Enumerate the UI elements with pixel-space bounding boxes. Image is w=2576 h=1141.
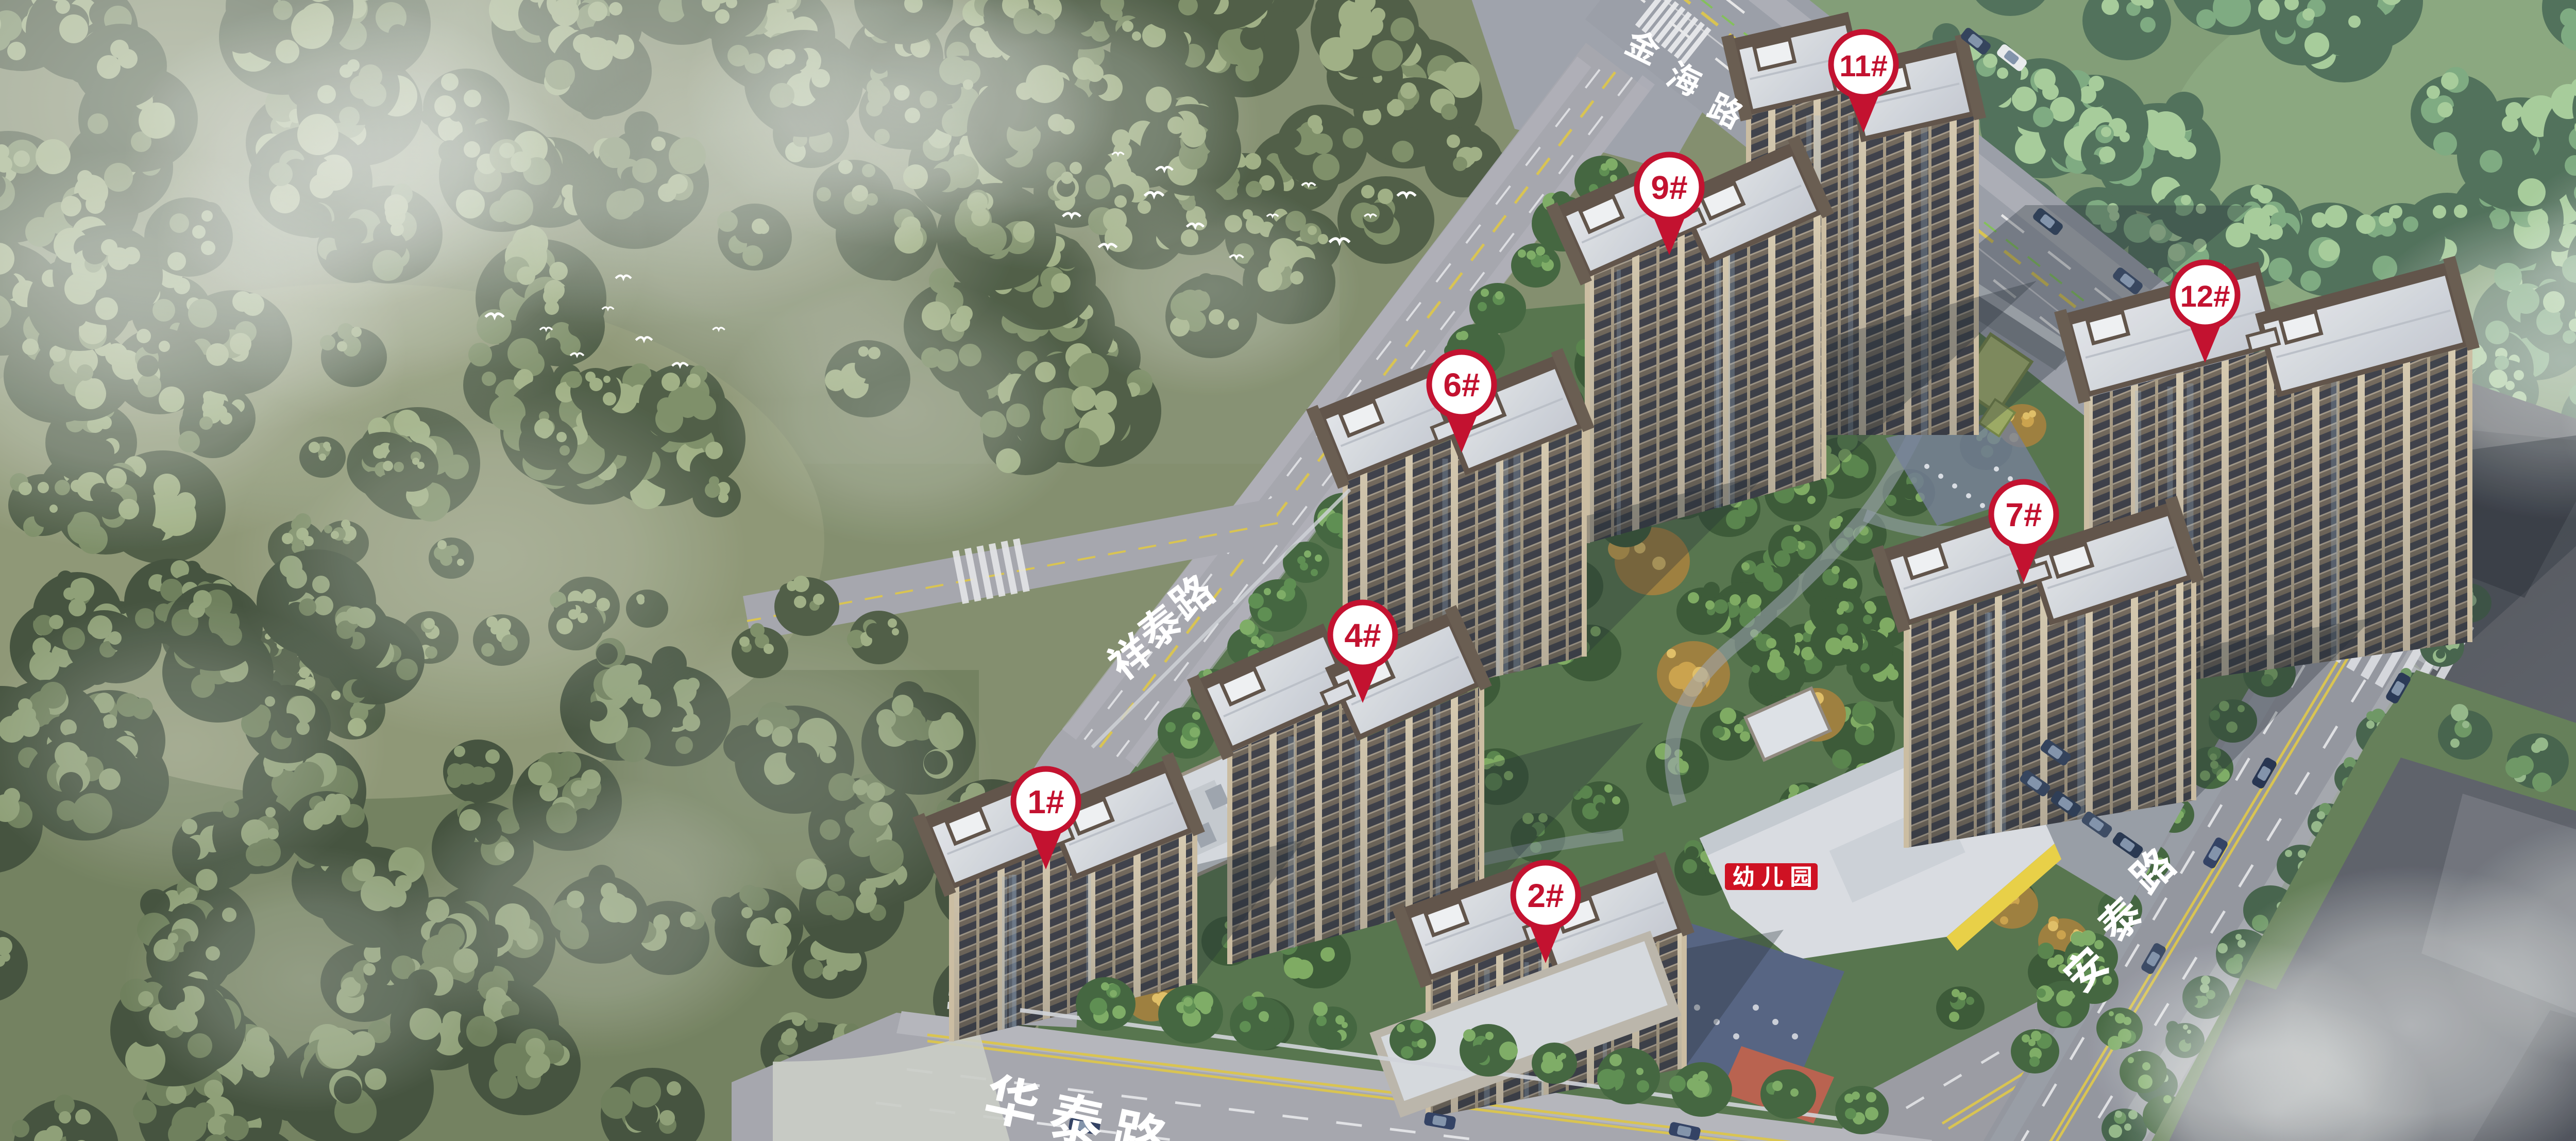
svg-text:12#: 12# <box>2180 280 2230 313</box>
svg-text:4#: 4# <box>1344 617 1381 654</box>
svg-text:7#: 7# <box>2005 496 2042 533</box>
svg-text:6#: 6# <box>1443 366 1480 404</box>
svg-text:11#: 11# <box>1839 49 1888 83</box>
svg-text:9#: 9# <box>1651 169 1687 206</box>
svg-text:1#: 1# <box>1027 783 1064 820</box>
svg-text:2#: 2# <box>1527 877 1564 914</box>
